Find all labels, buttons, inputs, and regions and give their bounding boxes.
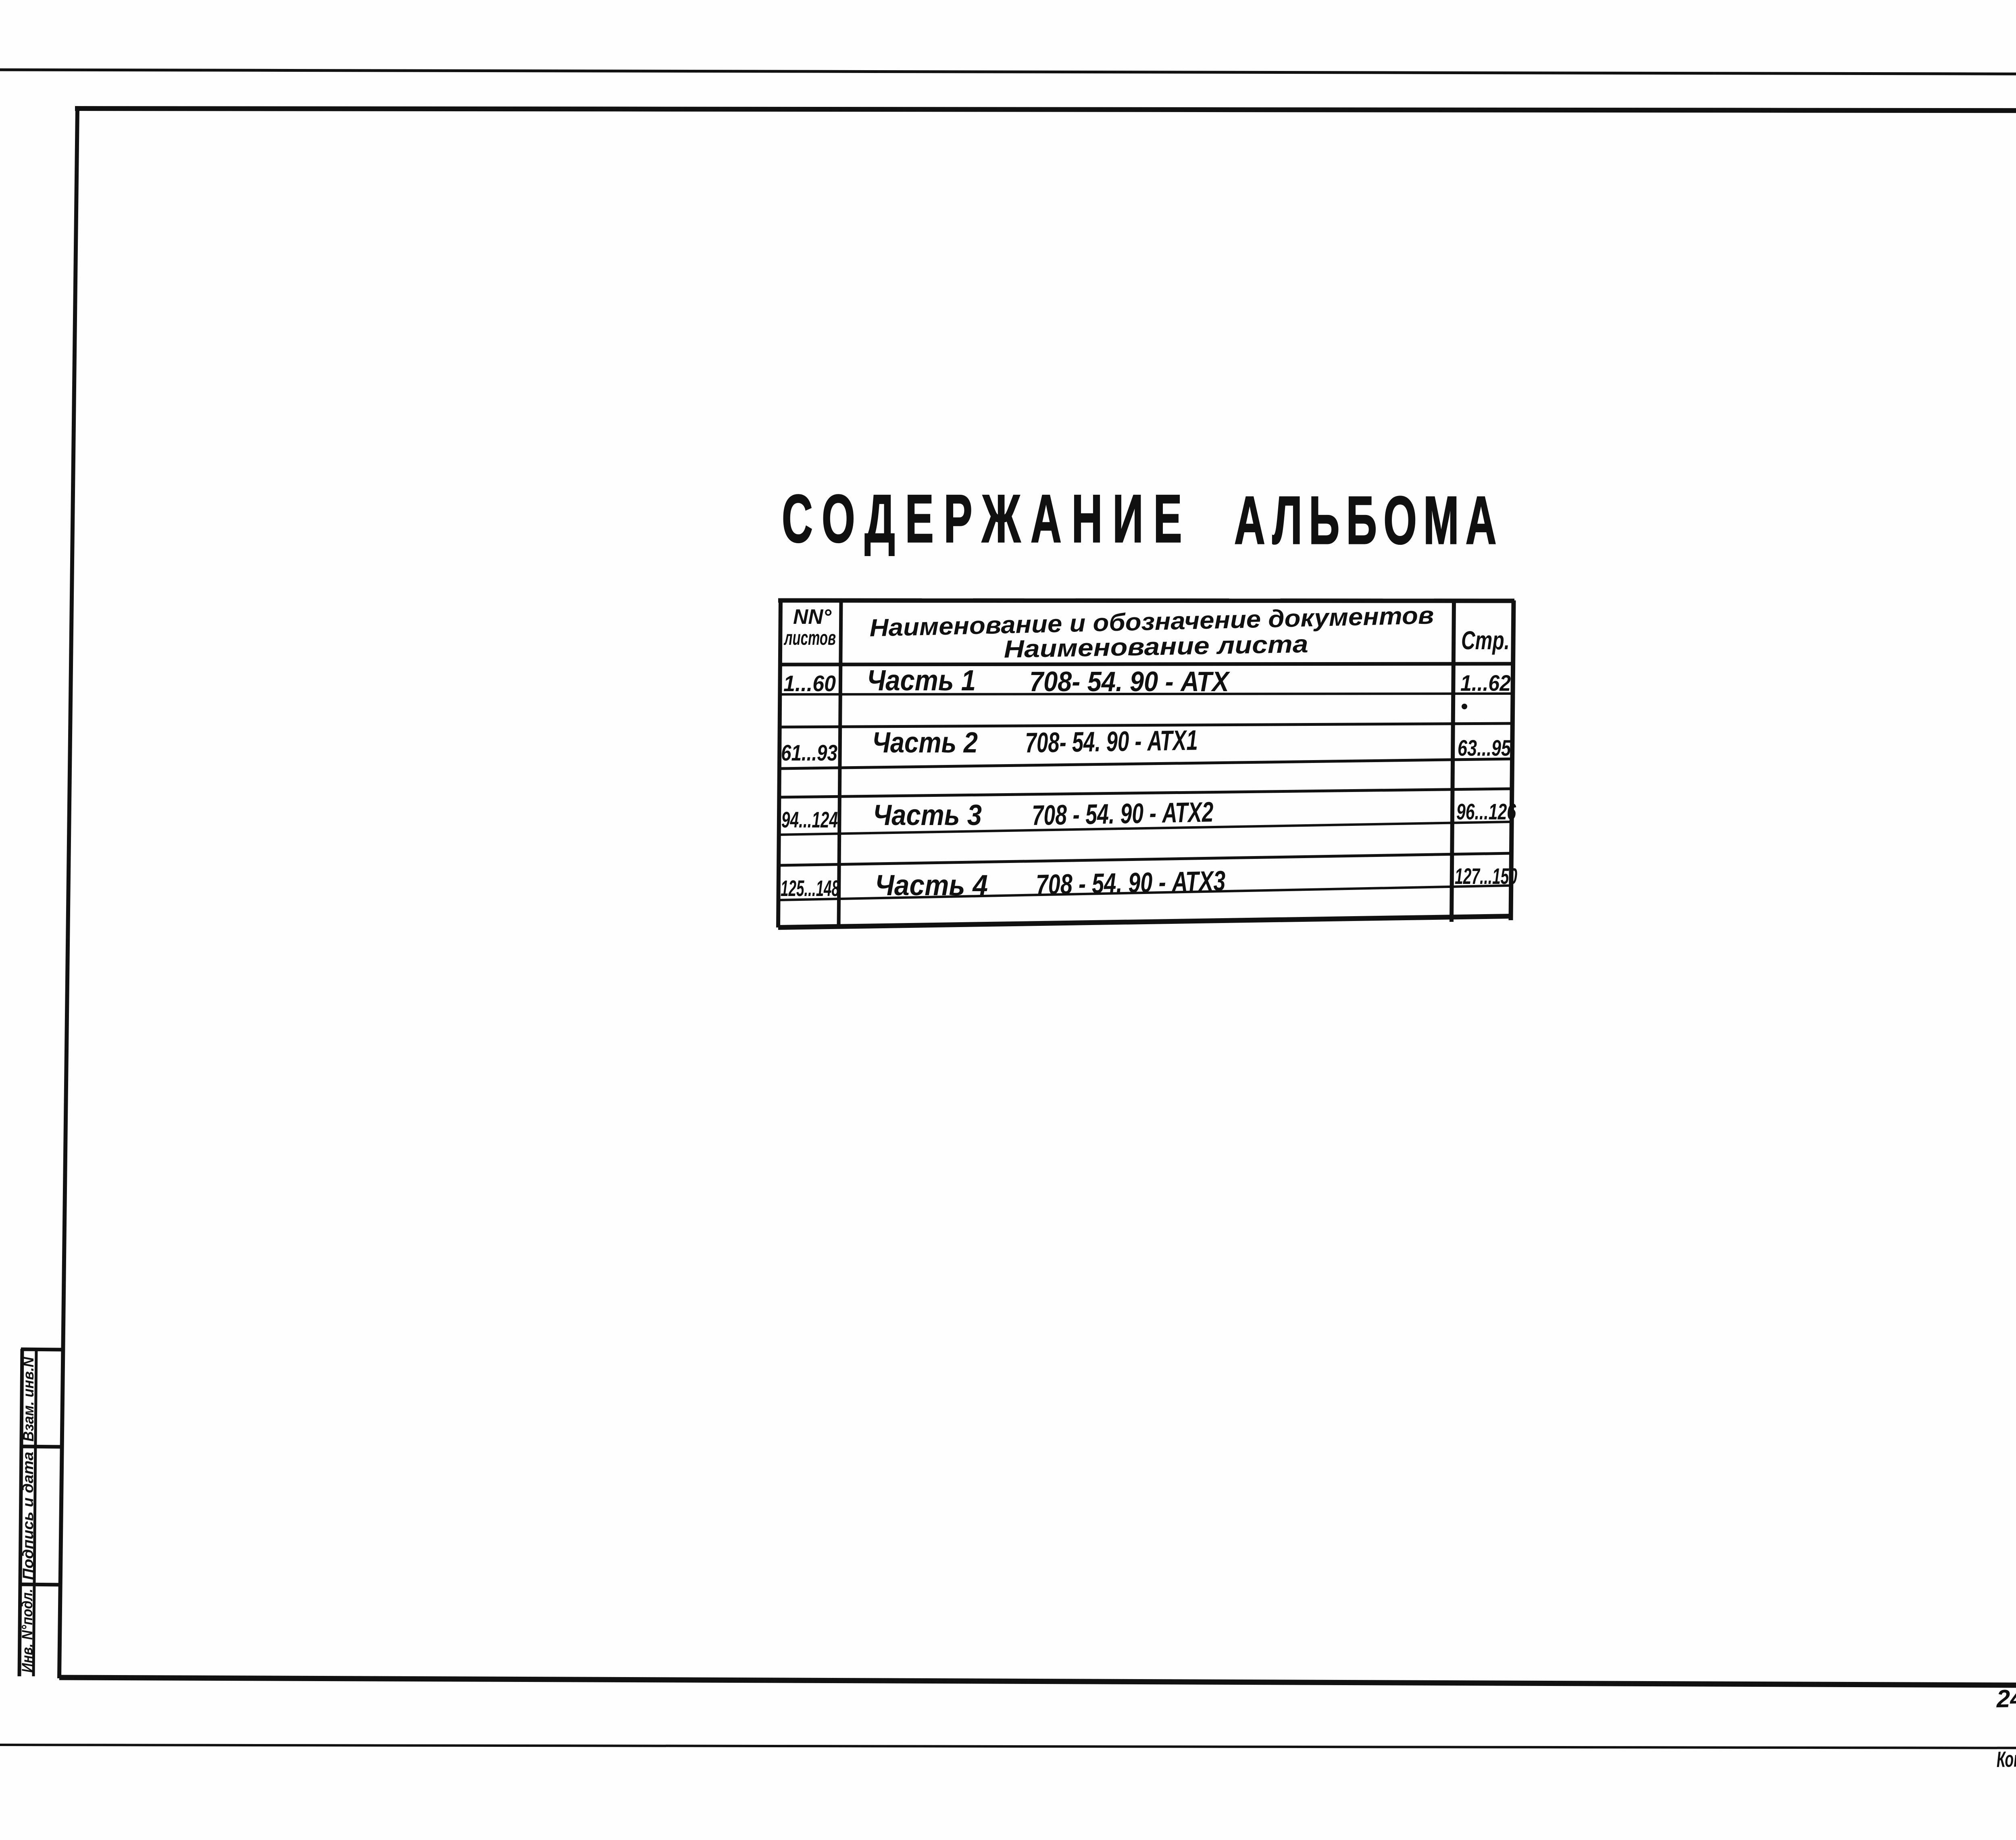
svg-text:94...124: 94...124: [781, 807, 838, 832]
svg-text:1...60: 1...60: [783, 671, 836, 696]
svg-text:листов: листов: [784, 627, 836, 649]
svg-text:Стр.: Стр.: [1461, 626, 1510, 655]
svg-text:Подпись и дата: Подпись и дата: [20, 1452, 36, 1580]
svg-text:Инв. N°подл.: Инв. N°подл.: [19, 1589, 35, 1673]
svg-text:Часть 4: Часть 4: [875, 869, 988, 902]
svg-text:Часть 2: Часть 2: [872, 727, 978, 759]
svg-text:61...93: 61...93: [781, 740, 837, 765]
svg-text:96...126: 96...126: [1456, 799, 1516, 824]
svg-text:АЛЬБОМА: АЛЬБОМА: [1234, 482, 1496, 558]
svg-text:63...95: 63...95: [1458, 735, 1511, 761]
svg-text:Наименование листа: Наименование листа: [1004, 630, 1308, 663]
svg-text:708- 54. 90 - АТХ1: 708- 54. 90 - АТХ1: [1025, 724, 1198, 759]
svg-text:708 - 54. 90 - АТХ2: 708 - 54. 90 - АТХ2: [1032, 796, 1214, 831]
svg-text:708 - 54. 90 - АТХ3: 708 - 54. 90 - АТХ3: [1036, 865, 1226, 900]
svg-text:1...62: 1...62: [1460, 670, 1511, 696]
svg-text:708- 54. 90 - АТХ: 708- 54. 90 - АТХ: [1029, 666, 1231, 697]
svg-text:Взам. инв.N: Взам. инв.N: [20, 1357, 37, 1442]
svg-text:СОДЕРЖАНИЕ: СОДЕРЖАНИЕ: [782, 481, 1182, 556]
svg-text:Копировал: Устинова: Копировал: Устинова: [1996, 1744, 2016, 1772]
svg-text:NN°: NN°: [793, 605, 832, 629]
svg-text:Часть 3: Часть 3: [873, 799, 982, 831]
svg-text:127...150: 127...150: [1455, 863, 1517, 889]
svg-text:24478 - 07: 24478 - 07: [1996, 1683, 2016, 1713]
svg-text:Часть 1: Часть 1: [867, 665, 976, 697]
svg-text:125...148: 125...148: [781, 875, 840, 901]
